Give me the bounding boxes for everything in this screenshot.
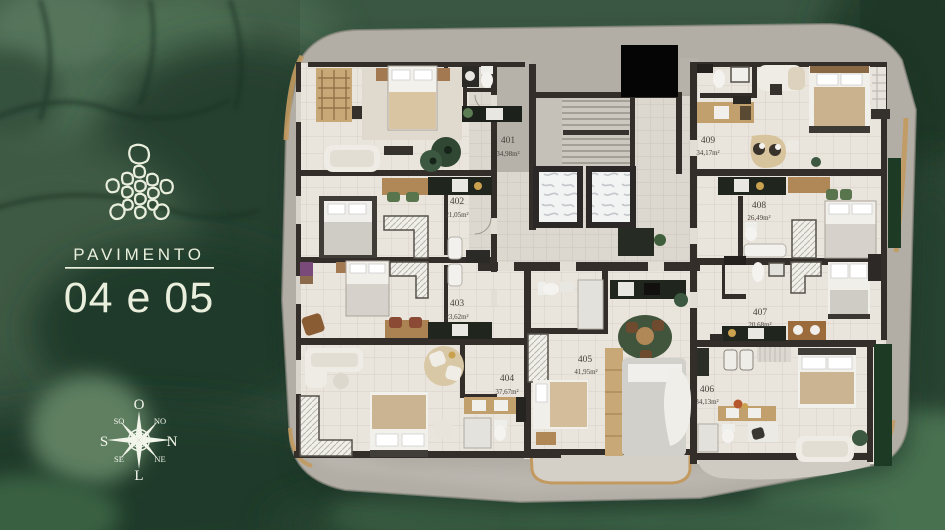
svg-text:23,62m²: 23,62m² xyxy=(445,313,468,321)
svg-text:21,05m²: 21,05m² xyxy=(445,211,468,219)
svg-text:34,98m²: 34,98m² xyxy=(496,150,519,158)
svg-text:409: 409 xyxy=(701,136,716,146)
svg-text:37,67m²: 37,67m² xyxy=(495,388,518,396)
svg-text:407: 407 xyxy=(753,308,768,318)
svg-text:404: 404 xyxy=(500,374,515,384)
svg-text:NE: NE xyxy=(154,454,165,464)
svg-text:L: L xyxy=(134,468,143,484)
svg-text:41,95m²: 41,95m² xyxy=(574,368,597,376)
svg-text:SO: SO xyxy=(114,416,125,426)
svg-text:20,68m²: 20,68m² xyxy=(748,321,771,329)
svg-text:26,49m²: 26,49m² xyxy=(747,214,770,222)
svg-text:406: 406 xyxy=(700,385,715,395)
svg-text:04 e 05: 04 e 05 xyxy=(64,274,214,322)
svg-text:NO: NO xyxy=(154,416,166,426)
svg-text:401: 401 xyxy=(501,136,516,146)
svg-text:403: 403 xyxy=(450,299,465,309)
svg-text:PAVIMENTO: PAVIMENTO xyxy=(73,245,205,264)
svg-text:O: O xyxy=(134,397,145,413)
svg-text:34,13m²: 34,13m² xyxy=(695,398,718,406)
svg-text:34,17m²: 34,17m² xyxy=(696,149,719,157)
svg-text:405: 405 xyxy=(578,355,593,365)
svg-text:S: S xyxy=(100,434,108,450)
svg-text:408: 408 xyxy=(752,201,767,211)
svg-text:402: 402 xyxy=(450,197,465,207)
svg-text:N: N xyxy=(167,434,178,450)
svg-text:SE: SE xyxy=(114,454,124,464)
